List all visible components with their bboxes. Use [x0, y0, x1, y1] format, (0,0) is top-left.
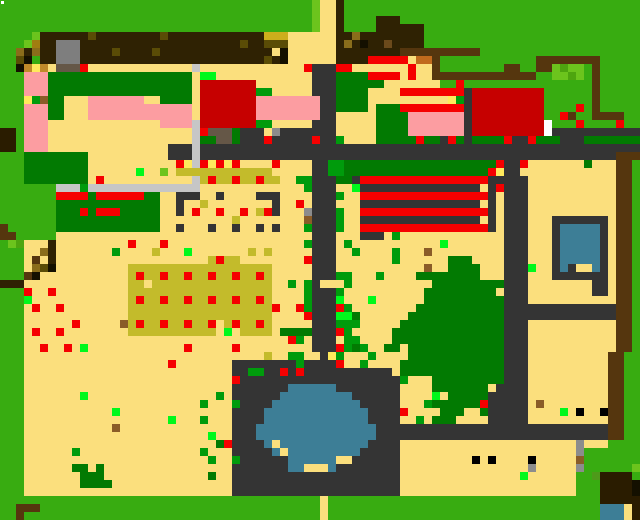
soil-black: [280, 56, 288, 64]
hedge: [432, 384, 480, 392]
green-dot: [216, 392, 224, 400]
black-dot: [576, 408, 584, 416]
green-dot: [200, 400, 208, 408]
brown-dot: [112, 424, 120, 432]
red-dot: [304, 312, 312, 320]
green-dot: [392, 232, 400, 240]
path-brown: [432, 56, 440, 72]
path-brown: [0, 224, 8, 232]
red-dot: [336, 328, 344, 336]
hedge: [80, 472, 104, 480]
road: [232, 224, 240, 232]
red-dot: [64, 344, 72, 352]
red-dot: [168, 360, 176, 368]
green-dot: [344, 304, 352, 312]
hedge: [72, 464, 88, 472]
green-dot: [344, 328, 352, 336]
red-dot: [304, 64, 312, 72]
hedge: [448, 256, 472, 264]
hedge: [336, 176, 352, 184]
black-dot: [528, 456, 536, 464]
green-dot: [296, 176, 312, 184]
soil-black: [24, 56, 32, 64]
soil-gold: [32, 40, 40, 48]
orchard-field: [128, 264, 272, 336]
light-green-patch: [32, 32, 40, 40]
soil-olive: [16, 48, 24, 56]
bright-sand: [208, 160, 216, 168]
pond-water: [256, 424, 376, 432]
red-dot: [528, 136, 536, 144]
hedge: [480, 352, 504, 384]
red-building: [472, 88, 544, 136]
road: [176, 224, 184, 232]
hedge: [24, 152, 88, 184]
grass-border: [0, 64, 24, 176]
green-dot: [344, 280, 352, 288]
choc-block: [0, 128, 16, 152]
hedge: [96, 464, 104, 472]
hedge: [440, 408, 464, 416]
road: [232, 360, 328, 368]
road: [592, 280, 608, 296]
mid-light-green: [568, 72, 576, 80]
red-dot: [480, 192, 488, 200]
red-dot: [408, 64, 416, 72]
red-dot: [480, 224, 488, 232]
hedge: [424, 288, 480, 296]
road: [544, 128, 640, 136]
neon-dot: [184, 248, 192, 256]
green-dot: [200, 448, 208, 456]
brown-dot: [424, 264, 432, 272]
red-dot: [264, 208, 272, 216]
brown-dot: [536, 400, 544, 408]
red-stripe: [400, 104, 464, 112]
green-dot: [336, 192, 344, 200]
hedge: [336, 72, 368, 112]
green-dot: [288, 280, 296, 288]
orchard-field: [152, 248, 160, 256]
green-dot: [416, 416, 424, 424]
dark-soil-strip: [272, 56, 280, 64]
hedge: [584, 160, 592, 168]
pink-roof: [24, 72, 48, 96]
road: [360, 184, 480, 192]
road: [216, 192, 224, 200]
dark-soil-strip: [48, 256, 56, 264]
dark-hut: [632, 496, 640, 520]
red-dot: [576, 104, 584, 112]
orchard-field: [176, 168, 272, 176]
green-dot: [256, 88, 272, 96]
sand-detail: [304, 464, 328, 472]
tan-cell: [40, 64, 48, 72]
red-dot: [56, 328, 64, 336]
path-brown: [592, 56, 600, 120]
path-brown: [616, 152, 640, 160]
red-dot: [192, 208, 200, 216]
sand-detail: [576, 264, 592, 272]
hedge: [352, 312, 360, 320]
hedge: [424, 136, 440, 144]
soil-dark-olive: [16, 56, 24, 64]
neon-dot: [528, 264, 536, 272]
sand-on-road: [264, 128, 272, 136]
gray-dot: [304, 208, 312, 216]
road: [504, 160, 520, 176]
pink-roof: [160, 104, 192, 128]
path-brown: [504, 64, 520, 72]
red-dot: [232, 296, 240, 304]
bright-sand: [32, 64, 40, 72]
red-dot: [256, 296, 264, 304]
green-dot: [360, 360, 368, 368]
neon-dot: [520, 472, 528, 480]
green-dot: [304, 224, 312, 232]
mid-light-green: [16, 240, 24, 248]
light-green-patch: [632, 464, 640, 472]
hedge: [48, 72, 160, 96]
hedge: [400, 320, 480, 328]
red-dot: [136, 296, 144, 304]
red-dot: [256, 320, 264, 328]
sand-detail: [280, 448, 288, 456]
path-brown: [536, 56, 592, 64]
green-dot: [304, 184, 312, 192]
red-dot: [48, 288, 56, 296]
orchard-field: [232, 216, 240, 224]
bright-sand: [448, 96, 456, 104]
dirt-step: [32, 256, 40, 264]
green-dot: [376, 272, 384, 280]
gray-dot: [528, 464, 536, 472]
soil-dark-olive: [264, 56, 272, 64]
orchard-field: [208, 256, 240, 264]
neon-dot: [136, 168, 144, 176]
red-dot: [256, 272, 264, 280]
pond-water: [288, 384, 336, 392]
red-dot: [40, 344, 48, 352]
sand-detail: [464, 408, 480, 416]
neon-dot: [560, 408, 568, 416]
red-dot: [576, 120, 584, 128]
pond-water: [600, 504, 624, 520]
red-dot: [480, 208, 488, 216]
sand-detail: [320, 496, 328, 520]
road: [256, 224, 264, 232]
green-dot: [208, 456, 216, 464]
red-dot: [400, 408, 408, 416]
gray-building: [56, 40, 80, 64]
white-dot: [1, 1, 4, 4]
hedge: [584, 136, 640, 144]
hedge: [448, 264, 480, 272]
red-dot: [304, 256, 312, 264]
soil-dark-olive: [160, 32, 168, 40]
red-dot: [336, 360, 344, 368]
green-dot: [304, 280, 312, 312]
soil-dark-olive: [240, 40, 248, 48]
hedge: [448, 392, 480, 400]
mid-light-green: [560, 64, 568, 72]
red-dot: [336, 304, 344, 312]
pond-water: [288, 456, 336, 464]
path-brown: [600, 112, 624, 120]
green-dot: [392, 248, 400, 264]
pond-water: [256, 432, 376, 440]
red-dot: [208, 296, 216, 304]
red-dot: [480, 176, 488, 184]
red-dot: [224, 440, 232, 448]
grass-border: [0, 176, 56, 240]
red-dot: [232, 272, 240, 280]
red-dot: [176, 160, 184, 168]
soil-olive: [32, 264, 40, 272]
walkway: [56, 184, 200, 192]
sand-detail: [400, 352, 408, 360]
red-dot: [264, 136, 272, 144]
red-dot: [520, 160, 528, 168]
darkest-cell: [632, 480, 640, 496]
sand-detail: [496, 288, 504, 296]
pond-water: [328, 464, 336, 472]
hedge: [80, 480, 112, 488]
red-dot: [232, 376, 240, 384]
pond-water: [264, 416, 368, 424]
red-stripe: [368, 56, 408, 64]
hedge: [432, 416, 456, 424]
road: [272, 224, 280, 232]
hedge: [480, 408, 488, 416]
red-dot: [232, 160, 240, 168]
red-dot: [216, 256, 224, 264]
sand-detail: [488, 384, 496, 392]
neon-dot: [168, 416, 176, 424]
light-green-patch: [8, 240, 16, 248]
hedge: [392, 336, 480, 344]
road: [168, 144, 616, 160]
gray-dot: [272, 128, 280, 136]
green-dot: [112, 248, 120, 256]
green-dot: [336, 272, 352, 280]
brown-dot: [576, 456, 584, 464]
hedge: [344, 160, 480, 176]
road: [208, 224, 216, 232]
sand-detail: [272, 48, 280, 56]
pond-water: [272, 400, 360, 408]
red-dot: [184, 320, 192, 328]
hedge: [160, 72, 192, 104]
neon-dot: [24, 296, 32, 304]
hedge: [408, 136, 416, 144]
red-dot: [288, 336, 296, 344]
path-brown: [16, 504, 40, 512]
pink-roof: [144, 104, 160, 120]
soil-black: [280, 48, 288, 56]
red-dot: [232, 320, 240, 328]
path-brown: [608, 352, 624, 440]
green-dot: [232, 456, 240, 464]
light-green-patch: [24, 40, 32, 48]
red-dot: [96, 176, 104, 184]
soil-black: [16, 64, 24, 72]
green-dot: [336, 288, 344, 296]
green-dot: [336, 320, 360, 328]
black-dot: [600, 408, 608, 416]
red-dot: [256, 176, 264, 184]
dark-soil-strip: [408, 32, 424, 48]
red-dot: [280, 368, 288, 376]
green-dot: [456, 96, 464, 104]
hedge: [432, 400, 480, 408]
soil-olive: [40, 248, 48, 256]
sand-patch: [320, 0, 336, 64]
red-dot: [160, 240, 168, 248]
soil-dark-olive: [152, 48, 160, 56]
red-dot: [200, 160, 208, 168]
neon-dot: [224, 328, 232, 336]
red-dot: [416, 136, 424, 144]
soil-black: [48, 264, 56, 272]
dark-soil-strip: [24, 48, 32, 56]
red-dot: [312, 136, 320, 144]
red-dot: [208, 176, 216, 184]
red-dot: [80, 64, 88, 72]
tan-cell: [24, 64, 32, 72]
sand-detail: [624, 504, 632, 520]
road: [440, 136, 448, 144]
bright-sand: [24, 96, 32, 104]
green-dot: [400, 376, 408, 384]
red-dot: [480, 400, 488, 408]
sand-detail: [336, 456, 352, 464]
green-dot: [336, 352, 344, 360]
green-dot: [344, 336, 360, 344]
hedge: [432, 280, 480, 288]
road: [616, 144, 640, 152]
green-dot: [288, 352, 304, 360]
dirt-step: [24, 272, 32, 280]
green-dot: [296, 336, 304, 344]
hedge: [432, 376, 480, 384]
red-building: [200, 80, 256, 128]
neon-dot: [432, 392, 440, 400]
hedge: [408, 352, 480, 360]
gray-brown-hut: [208, 128, 232, 136]
red-dot: [208, 272, 216, 280]
green-dot: [256, 368, 264, 376]
pink-roof: [256, 96, 320, 120]
hedge: [392, 328, 480, 336]
hedge: [456, 136, 464, 144]
gray-brown-hut: [56, 64, 80, 72]
green-dot: [200, 416, 208, 424]
road: [176, 192, 200, 200]
sand-detail: [216, 320, 224, 328]
pink-roof: [408, 112, 464, 136]
orchard-field: [248, 248, 256, 256]
red-stripe: [96, 192, 144, 200]
red-dot: [232, 176, 240, 184]
pond-water: [592, 264, 600, 272]
brown-dot: [424, 248, 432, 256]
bright-sand: [496, 168, 504, 176]
yellow-block: [264, 32, 288, 40]
green-dot: [344, 240, 352, 248]
orchard-field: [256, 208, 264, 216]
red-stripe: [360, 176, 480, 184]
road: [464, 88, 472, 136]
road: [528, 304, 616, 320]
sand-detail: [216, 328, 224, 336]
red-dot: [296, 304, 304, 312]
red-dot: [496, 160, 504, 168]
bright-sand: [184, 160, 192, 168]
red-stripe: [96, 208, 120, 216]
road: [360, 216, 480, 224]
green-dot: [344, 344, 352, 352]
neon-dot: [80, 392, 88, 400]
hedge: [536, 136, 560, 144]
red-dot: [56, 304, 64, 312]
red-dot: [200, 128, 208, 136]
road: [360, 232, 384, 240]
red-stripe: [368, 72, 400, 80]
dark-soil-strip: [336, 0, 344, 32]
road: [512, 136, 528, 144]
red-stripe: [360, 224, 480, 232]
hedge: [280, 328, 312, 336]
hedge: [208, 472, 216, 480]
hedge: [216, 440, 224, 448]
sand-on-road: [320, 280, 336, 288]
red-stripe: [360, 192, 480, 200]
road: [272, 200, 280, 216]
path-brown: [568, 112, 576, 120]
hedge: [48, 96, 64, 120]
hedge: [424, 296, 480, 304]
sand-detail: [272, 440, 280, 448]
red-dot: [216, 208, 224, 216]
red-stripe: [56, 192, 88, 200]
road: [360, 200, 480, 208]
grass-border: [632, 160, 640, 352]
red-dot: [272, 160, 280, 168]
dark-soil-strip: [16, 280, 24, 288]
red-dot: [616, 120, 624, 128]
path-brown: [616, 160, 632, 352]
red-dot: [232, 344, 240, 352]
green-dot: [232, 400, 240, 408]
red-dot: [160, 320, 168, 328]
neon-dot: [336, 312, 352, 320]
green-dot: [336, 208, 344, 232]
gray-dot: [576, 440, 584, 448]
red-dot: [456, 80, 464, 88]
orchard-field: [200, 200, 208, 208]
red-dot: [24, 288, 32, 296]
soil-black: [360, 40, 368, 48]
grass-border: [624, 344, 640, 440]
bright-sand: [328, 352, 336, 360]
hedge: [480, 384, 488, 400]
green-dot: [296, 360, 304, 368]
hedge: [352, 344, 360, 352]
neon-dot: [352, 184, 360, 192]
path-brown: [0, 232, 16, 240]
path-brown: [16, 512, 24, 520]
